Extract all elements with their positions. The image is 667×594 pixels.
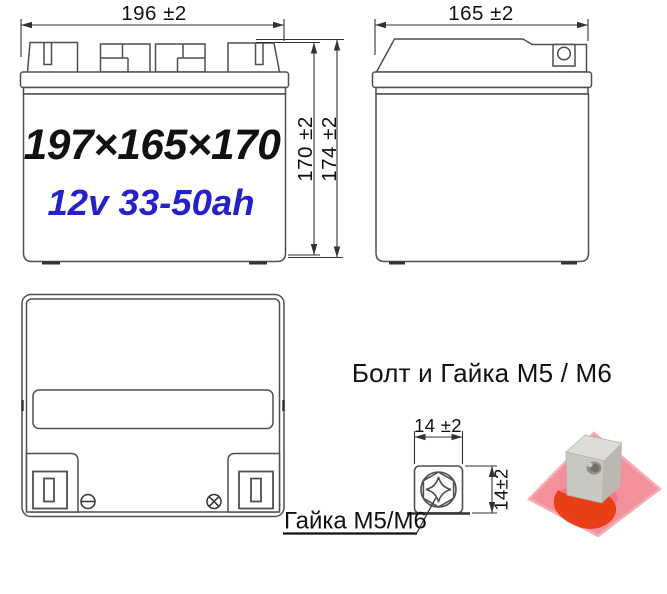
height-ext-lines-bottom [288, 255, 343, 258]
side-depth-dim-text: 165 ±2 [448, 2, 514, 25]
front-body-shoulder [24, 88, 286, 95]
hardware-title: Болт и Гайка M5 / M6 [352, 358, 612, 388]
case-height-dim-text: 170 ±2 [294, 116, 317, 182]
front-rating-label: 12v 33-50ah [48, 182, 255, 223]
front-size-label: 197×165×170 [24, 122, 282, 169]
positive-terminal-icon [207, 495, 221, 509]
top-right-terminal-slot [251, 479, 261, 502]
nut-width-dim-text: 14 ±2 [414, 415, 462, 436]
battery-spec-diagram: 197×165×170 12v 33-50ah 196 ±2 170 ±2 17… [0, 0, 667, 594]
side-body [376, 94, 589, 262]
photo-nut-hole-highlight [587, 463, 592, 467]
top-view-drawing [22, 295, 284, 517]
diagram-canvas: 197×165×170 12v 33-50ah 196 ±2 170 ±2 17… [0, 0, 667, 594]
front-lid-band [21, 72, 289, 88]
front-width-dim-text: 196 ±2 [121, 2, 187, 25]
photo-nut-front-face [566, 452, 604, 503]
nut-photo [529, 433, 660, 536]
nut-height-dim-text: 14±2 [491, 468, 512, 510]
nut-drawing [407, 466, 470, 514]
side-terminal-hole [558, 47, 571, 60]
side-view-drawing [373, 39, 592, 263]
top-handle-recess [33, 390, 273, 429]
front-lid-right-block [228, 43, 280, 72]
side-body-shoulder [376, 88, 588, 95]
height-ext-lines-top [256, 40, 344, 43]
front-lid-left-block [28, 43, 78, 73]
side-lid-band [373, 72, 592, 88]
nut-callout-text: Гайка M5/M6 [284, 508, 427, 535]
negative-terminal-icon [81, 495, 95, 509]
front-body [24, 94, 286, 262]
top-left-terminal-slot [44, 479, 54, 502]
total-height-dim-text: 174 ±2 [318, 116, 341, 182]
